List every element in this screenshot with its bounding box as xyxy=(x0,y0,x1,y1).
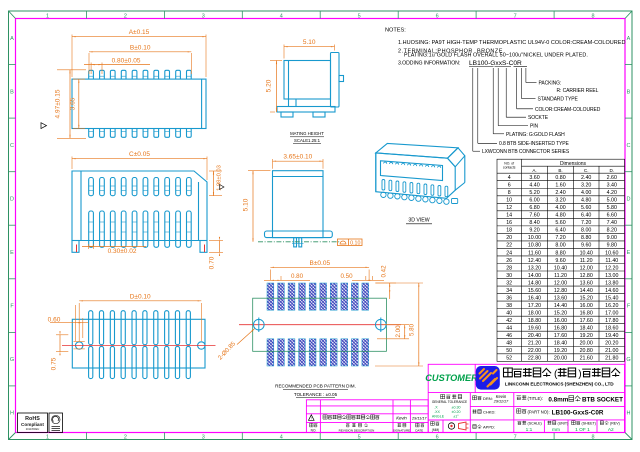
svg-text:17.00: 17.00 xyxy=(605,311,618,317)
svg-text:SOCKTE: SOCKTE xyxy=(528,115,549,121)
svg-text:A2: A2 xyxy=(608,427,614,433)
svg-text:18.60: 18.60 xyxy=(605,326,618,332)
svg-text:18: 18 xyxy=(506,228,512,234)
svg-text:(REV): (REV) xyxy=(610,422,620,426)
svg-text:C: C xyxy=(10,143,14,149)
svg-text:6.80: 6.80 xyxy=(529,205,539,211)
svg-text:22.00: 22.00 xyxy=(528,348,541,354)
svg-text:SCALE1.25:1: SCALE1.25:1 xyxy=(294,138,321,143)
svg-text:0.80±0.05: 0.80±0.05 xyxy=(112,57,141,64)
svg-text:20.20: 20.20 xyxy=(605,341,618,347)
svg-text:14.80: 14.80 xyxy=(528,280,541,286)
svg-text:1:1: 1:1 xyxy=(526,427,533,433)
svg-text:.XX: .XX xyxy=(434,410,440,414)
svg-text:D: D xyxy=(627,197,631,203)
svg-text:3.65±0.10: 3.65±0.10 xyxy=(283,154,312,161)
svg-text:PACKING:: PACKING: xyxy=(539,80,562,86)
svg-text:A±0.15: A±0.15 xyxy=(129,29,150,36)
svg-text:5: 5 xyxy=(358,435,361,441)
svg-text:Kevin: Kevin xyxy=(396,416,407,421)
svg-text:5.10: 5.10 xyxy=(242,198,249,211)
svg-text:18.80: 18.80 xyxy=(528,318,541,324)
svg-text:8.40: 8.40 xyxy=(529,220,539,226)
svg-text:contacts: contacts xyxy=(503,166,516,170)
svg-text:10: 10 xyxy=(506,198,512,204)
svg-text:21.20: 21.20 xyxy=(528,341,541,347)
svg-text:6: 6 xyxy=(436,435,439,441)
svg-text:8: 8 xyxy=(591,435,594,441)
svg-text:21.00: 21.00 xyxy=(605,348,618,354)
svg-text:18.00: 18.00 xyxy=(528,311,541,317)
svg-text:D.: D. xyxy=(610,168,615,173)
svg-text:4.40: 4.40 xyxy=(529,183,539,189)
svg-text:18.40: 18.40 xyxy=(580,326,593,332)
svg-text:11.20: 11.20 xyxy=(580,258,593,264)
svg-text:(SHEET): (SHEET) xyxy=(582,422,596,426)
svg-text:±1°: ±1° xyxy=(453,415,459,419)
svg-text:40: 40 xyxy=(506,311,512,317)
svg-text:52: 52 xyxy=(506,356,512,362)
svg-text:42: 42 xyxy=(506,318,512,324)
svg-text:C±0.05: C±0.05 xyxy=(129,151,150,158)
svg-text:7.60: 7.60 xyxy=(529,213,539,219)
svg-text:18.40: 18.40 xyxy=(554,341,567,347)
svg-text:NOTES:: NOTES: xyxy=(385,28,406,34)
svg-text:Dimensions: Dimensions xyxy=(560,161,587,167)
svg-text:12: 12 xyxy=(506,205,512,211)
svg-text:30: 30 xyxy=(506,273,512,279)
svg-text:29/11/17: 29/11/17 xyxy=(411,417,427,421)
svg-text:1: 1 xyxy=(46,13,49,19)
svg-text:10.00: 10.00 xyxy=(528,235,541,241)
svg-text:16.80: 16.80 xyxy=(554,326,567,332)
svg-text:D±0.10: D±0.10 xyxy=(130,293,151,300)
svg-text:LXWCONN BTB CONNECTOR SERIES: LXWCONN BTB CONNECTOR SERIES xyxy=(482,149,570,155)
svg-text:2.40: 2.40 xyxy=(581,175,591,181)
svg-text:COLOR:CREAM-COLOURED: COLOR:CREAM-COLOURED xyxy=(535,107,601,113)
svg-text:4.97±0.15: 4.97±0.15 xyxy=(55,89,62,118)
svg-text:3.20: 3.20 xyxy=(581,183,591,189)
svg-text:13.00: 13.00 xyxy=(605,273,618,279)
svg-text:DATE: DATE xyxy=(415,429,423,433)
svg-text:12.20: 12.20 xyxy=(605,265,618,271)
svg-text:16.00: 16.00 xyxy=(554,318,567,324)
svg-text:GENERAL TOLERANCE: GENERAL TOLERANCE xyxy=(432,400,467,404)
svg-text:15.20: 15.20 xyxy=(554,311,567,317)
svg-text:A: A xyxy=(627,36,631,42)
svg-text:14.00: 14.00 xyxy=(528,273,541,279)
svg-text:PLATING: G:GOLD FLASH: PLATING: G:GOLD FLASH xyxy=(506,132,565,138)
svg-text:STANDARD TYPE: STANDARD TYPE xyxy=(538,96,579,102)
svg-text:10.40: 10.40 xyxy=(554,265,567,271)
svg-text:BTB SOCKET: BTB SOCKET xyxy=(582,396,623,403)
svg-text:LINKCONN ELECTRONICS (SHENZHEN: LINKCONN ELECTRONICS (SHENZHEN) CO., LTD xyxy=(505,381,615,386)
svg-text:6: 6 xyxy=(508,183,511,189)
svg-text:5: 5 xyxy=(358,13,361,19)
svg-text:32: 32 xyxy=(506,280,512,286)
svg-text:B±0.05: B±0.05 xyxy=(310,260,331,267)
svg-text:15.40: 15.40 xyxy=(605,295,618,301)
svg-text:24: 24 xyxy=(506,250,512,256)
svg-text:3: 3 xyxy=(202,13,205,19)
svg-text:NO.: NO. xyxy=(311,429,317,433)
svg-text:50: 50 xyxy=(506,348,512,354)
svg-text:5.20: 5.20 xyxy=(529,190,539,196)
svg-text:6.40: 6.40 xyxy=(555,228,565,234)
svg-text:22: 22 xyxy=(506,243,512,249)
svg-text:.X: .X xyxy=(434,406,438,410)
svg-text:(UNIT): (UNIT) xyxy=(558,422,569,426)
svg-text:38: 38 xyxy=(506,303,512,309)
svg-text:(SCALE): (SCALE) xyxy=(528,422,542,426)
svg-text:mm: mm xyxy=(552,428,560,433)
svg-text:Compliant: Compliant xyxy=(21,422,44,427)
svg-text:17.20: 17.20 xyxy=(528,303,541,309)
svg-text:7.20: 7.20 xyxy=(555,235,565,241)
svg-text:5.00: 5.00 xyxy=(607,198,617,204)
svg-text:G: G xyxy=(626,357,630,363)
svg-text:0.75: 0.75 xyxy=(51,357,58,370)
svg-text:G: G xyxy=(10,357,14,363)
svg-text:PIN: PIN xyxy=(530,124,539,130)
svg-text:8: 8 xyxy=(591,13,594,19)
svg-text:A: A xyxy=(10,36,14,42)
svg-text:36: 36 xyxy=(506,295,512,301)
svg-text:MATING HEIGHT: MATING HEIGHT xyxy=(290,131,324,136)
svg-text:E: E xyxy=(10,250,14,256)
svg-text:9.00: 9.00 xyxy=(607,235,617,241)
svg-text:±0.20: ±0.20 xyxy=(452,410,461,414)
svg-text:0.8 BTB SIDE-INSERTED TYPE: 0.8 BTB SIDE-INSERTED TYPE xyxy=(499,141,570,147)
svg-text:22.80: 22.80 xyxy=(528,356,541,362)
svg-text:B±0.10: B±0.10 xyxy=(130,44,151,51)
svg-text:44: 44 xyxy=(506,326,512,332)
svg-text:17.60: 17.60 xyxy=(554,333,567,339)
svg-text:15.20: 15.20 xyxy=(580,295,593,301)
svg-text:3.20: 3.20 xyxy=(555,198,565,204)
svg-text:ANGLE: ANGLE xyxy=(432,415,445,419)
svg-text:1.60: 1.60 xyxy=(555,183,565,189)
svg-text:7: 7 xyxy=(514,13,517,19)
svg-text:(PART NO):: (PART NO): xyxy=(528,409,550,414)
svg-text:12.00: 12.00 xyxy=(580,265,593,271)
svg-text:5.20: 5.20 xyxy=(266,79,273,92)
svg-text:E: E xyxy=(627,250,631,256)
svg-text:20.00: 20.00 xyxy=(554,356,567,362)
svg-text:5.80: 5.80 xyxy=(409,323,416,336)
svg-text:11.20: 11.20 xyxy=(554,273,567,279)
svg-text:APPD:: APPD: xyxy=(483,425,495,430)
svg-text:CHKD:: CHKD: xyxy=(483,410,495,415)
svg-text:0.30±0.02: 0.30±0.02 xyxy=(108,248,137,255)
svg-text:3.65: 3.65 xyxy=(69,97,76,110)
svg-text:9.60: 9.60 xyxy=(555,258,565,264)
svg-text:0.80: 0.80 xyxy=(555,175,565,181)
svg-text:3D VIEW: 3D VIEW xyxy=(408,218,429,224)
svg-text:8.80: 8.80 xyxy=(581,235,591,241)
svg-text:6.40: 6.40 xyxy=(581,213,591,219)
svg-text:LB100-GxxS-C0R: LB100-GxxS-C0R xyxy=(552,410,604,417)
svg-text:20.80: 20.80 xyxy=(580,348,593,354)
svg-text:17.80: 17.80 xyxy=(605,318,618,324)
svg-text:DRN:: DRN: xyxy=(483,396,493,401)
svg-text:4: 4 xyxy=(280,13,283,19)
svg-text:B: B xyxy=(10,89,14,95)
svg-text:H: H xyxy=(627,411,631,417)
svg-text:REVISION DESCRIPTION: REVISION DESCRIPTION xyxy=(339,429,375,433)
svg-text:10.80: 10.80 xyxy=(528,243,541,249)
svg-text:A.: A. xyxy=(532,168,536,173)
svg-text:7.20: 7.20 xyxy=(581,220,591,226)
svg-text:PLATING:1u"GOLD FLASH OVERALL: PLATING:1u"GOLD FLASH OVERALL 50~100u"NI… xyxy=(404,53,588,59)
svg-text:26: 26 xyxy=(506,258,512,264)
svg-text:CUSTOMER: CUSTOMER xyxy=(425,373,478,383)
svg-text:3.40: 3.40 xyxy=(607,183,617,189)
svg-text:19.20: 19.20 xyxy=(580,333,593,339)
svg-text:28: 28 xyxy=(506,265,512,271)
svg-text:2.40: 2.40 xyxy=(555,190,565,196)
svg-text:13.20: 13.20 xyxy=(528,265,541,271)
svg-text:11.60: 11.60 xyxy=(528,250,541,256)
svg-text:20: 20 xyxy=(506,235,512,241)
svg-text:4.00: 4.00 xyxy=(581,190,591,196)
svg-text:0.42: 0.42 xyxy=(381,265,388,278)
svg-text:13.60: 13.60 xyxy=(580,280,593,286)
svg-text:C.: C. xyxy=(584,168,589,173)
svg-text:6.60: 6.60 xyxy=(607,213,617,219)
svg-text:14.40: 14.40 xyxy=(580,288,593,294)
svg-text:8.80: 8.80 xyxy=(555,250,565,256)
svg-text:14.40: 14.40 xyxy=(554,303,567,309)
svg-text:LB100-GxxS-C0R: LB100-GxxS-C0R xyxy=(469,60,522,67)
svg-text:14: 14 xyxy=(506,213,512,219)
svg-text:12.80: 12.80 xyxy=(580,273,593,279)
svg-text:21.60: 21.60 xyxy=(580,356,593,362)
svg-text:Kevin: Kevin xyxy=(496,394,507,399)
svg-text:(: ( xyxy=(554,369,558,380)
svg-text:2: 2 xyxy=(124,13,127,19)
svg-text:16: 16 xyxy=(506,220,512,226)
svg-text:D: D xyxy=(10,197,14,203)
svg-text:3.ODDING INFORMATION:: 3.ODDING INFORMATION: xyxy=(398,61,460,67)
svg-text:15.60: 15.60 xyxy=(528,288,541,294)
svg-text:4.80: 4.80 xyxy=(555,213,565,219)
svg-text:4.00: 4.00 xyxy=(555,205,565,211)
svg-text:2: 2 xyxy=(124,435,127,441)
svg-text:R: CARRIER REEL: R: CARRIER REEL xyxy=(557,88,599,94)
svg-text:!: ! xyxy=(311,417,312,421)
svg-text:2011/65/EU: 2011/65/EU xyxy=(26,427,40,431)
svg-text:6: 6 xyxy=(436,13,439,19)
svg-text:11.40: 11.40 xyxy=(605,258,618,264)
svg-text:B: B xyxy=(627,89,631,95)
svg-text:5.10: 5.10 xyxy=(303,39,316,46)
svg-text:1 OF 1: 1 OF 1 xyxy=(575,427,590,433)
svg-text:TOLERANCE : ±0.05: TOLERANCE : ±0.05 xyxy=(294,392,338,397)
svg-text:0.60: 0.60 xyxy=(48,316,61,323)
svg-text:12.80: 12.80 xyxy=(554,288,567,294)
svg-text:12.40: 12.40 xyxy=(528,258,541,264)
svg-text:9.20: 9.20 xyxy=(529,228,539,234)
svg-text:13.80: 13.80 xyxy=(605,280,618,286)
svg-text:0.8mm: 0.8mm xyxy=(548,396,568,403)
svg-text:7.40: 7.40 xyxy=(607,220,617,226)
svg-text:10.40: 10.40 xyxy=(580,250,593,256)
svg-text:21.80: 21.80 xyxy=(605,356,618,362)
svg-text:0.70: 0.70 xyxy=(209,256,216,269)
svg-text:8.00: 8.00 xyxy=(581,228,591,234)
svg-text:16.00: 16.00 xyxy=(580,303,593,309)
svg-text:20.40: 20.40 xyxy=(528,333,541,339)
svg-text:±0.30: ±0.30 xyxy=(452,406,461,410)
svg-text:10.60: 10.60 xyxy=(605,250,618,256)
svg-text:16.20: 16.20 xyxy=(605,303,618,309)
svg-text:14.60: 14.60 xyxy=(605,288,618,294)
svg-text:48: 48 xyxy=(506,341,512,347)
svg-text:2.60: 2.60 xyxy=(607,175,617,181)
svg-text:13.60: 13.60 xyxy=(554,295,567,301)
svg-text:46: 46 xyxy=(506,333,512,339)
svg-text:9.80: 9.80 xyxy=(607,243,617,249)
svg-text:(TITLE):: (TITLE): xyxy=(528,396,543,401)
svg-text:5.60: 5.60 xyxy=(581,205,591,211)
svg-text:6.00: 6.00 xyxy=(529,198,539,204)
svg-text:4.20: 4.20 xyxy=(607,190,617,196)
svg-text:8: 8 xyxy=(508,190,511,196)
svg-text:0.10: 0.10 xyxy=(350,240,360,246)
svg-text:RECOMMENDED PCB PATTERN DIM: RECOMMENDED PCB PATTERN DIM. xyxy=(275,384,356,389)
svg-text:7: 7 xyxy=(514,435,517,441)
svg-text:SIGNATURE: SIGNATURE xyxy=(393,429,410,433)
svg-text:20.00: 20.00 xyxy=(580,341,593,347)
svg-text:1.HUOSING: PA9T HIGH-TEMP THER: 1.HUOSING: PA9T HIGH-TEMP THERMOPLASTIC … xyxy=(398,40,625,46)
svg-text:4: 4 xyxy=(508,175,511,181)
svg-text:16.80: 16.80 xyxy=(580,311,593,317)
svg-text:19.20: 19.20 xyxy=(554,348,567,354)
svg-text:34: 34 xyxy=(506,288,512,294)
svg-text:29/11/17: 29/11/17 xyxy=(493,400,509,404)
svg-text:(MM): (MM) xyxy=(432,428,439,432)
svg-text:0.50: 0.50 xyxy=(340,273,353,280)
svg-text:5.80: 5.80 xyxy=(607,205,617,211)
svg-text:1: 1 xyxy=(46,435,49,441)
svg-text:3: 3 xyxy=(202,435,205,441)
svg-text:16.40: 16.40 xyxy=(528,295,541,301)
svg-text:17.60: 17.60 xyxy=(580,318,593,324)
svg-text:3.60: 3.60 xyxy=(529,175,539,181)
svg-text:8.00: 8.00 xyxy=(555,243,565,249)
svg-text:2.00: 2.00 xyxy=(395,325,402,338)
svg-text:19.60: 19.60 xyxy=(528,326,541,332)
svg-text:8.20: 8.20 xyxy=(607,228,617,234)
svg-text:19.40: 19.40 xyxy=(605,333,618,339)
svg-text:4.80: 4.80 xyxy=(581,198,591,204)
svg-text:B.: B. xyxy=(558,168,562,173)
svg-text:4: 4 xyxy=(280,435,283,441)
svg-text:C: C xyxy=(627,143,631,149)
svg-text:12.00: 12.00 xyxy=(554,280,567,286)
svg-text:0.80: 0.80 xyxy=(291,273,304,280)
svg-text:): ) xyxy=(578,369,581,380)
svg-text:H: H xyxy=(10,411,14,417)
svg-text:9.60: 9.60 xyxy=(581,243,591,249)
svg-text:5.60: 5.60 xyxy=(555,220,565,226)
